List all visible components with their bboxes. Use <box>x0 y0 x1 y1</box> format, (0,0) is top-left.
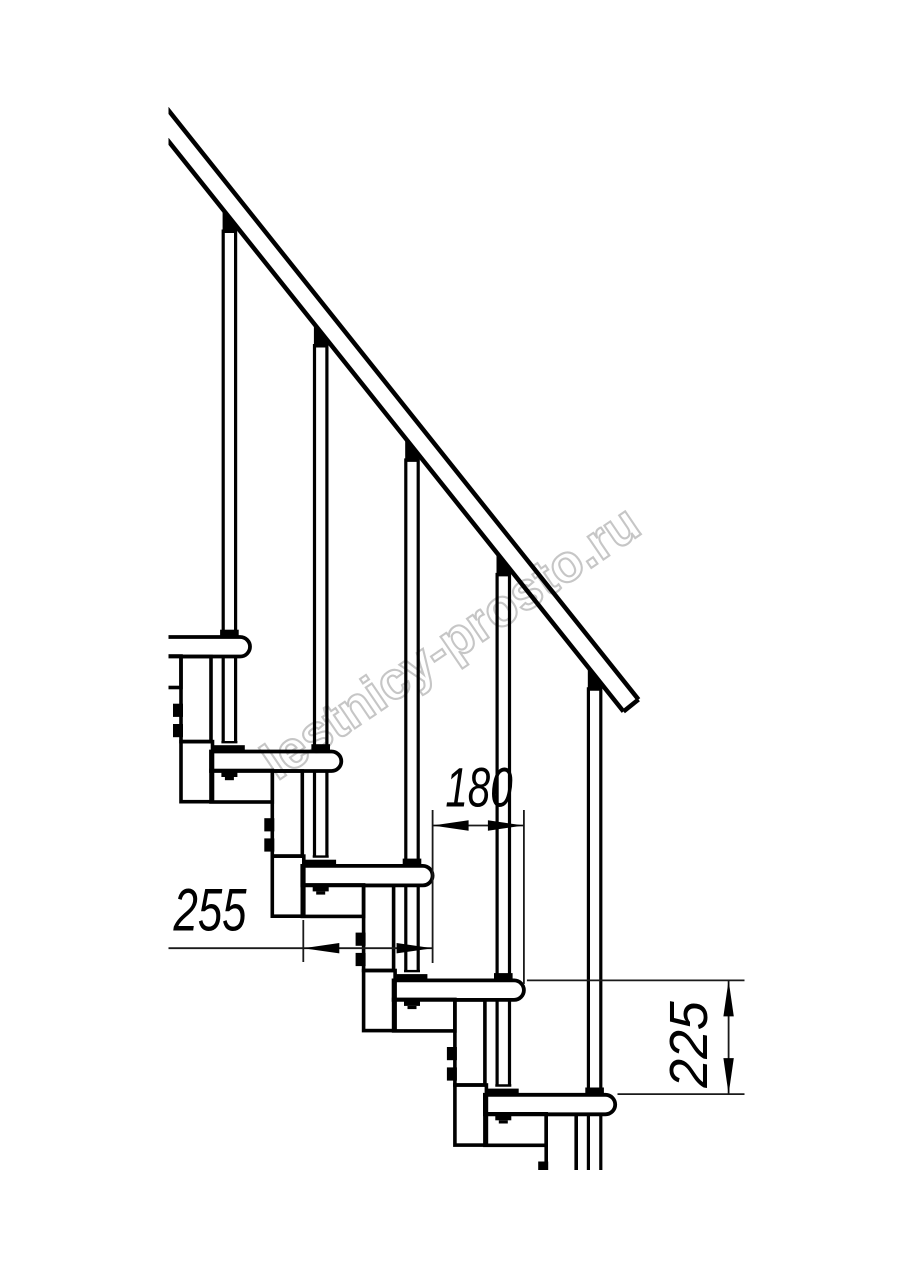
svg-text:225: 225 <box>659 1001 719 1089</box>
svg-text:180: 180 <box>445 757 512 819</box>
svg-text:255: 255 <box>173 877 248 944</box>
